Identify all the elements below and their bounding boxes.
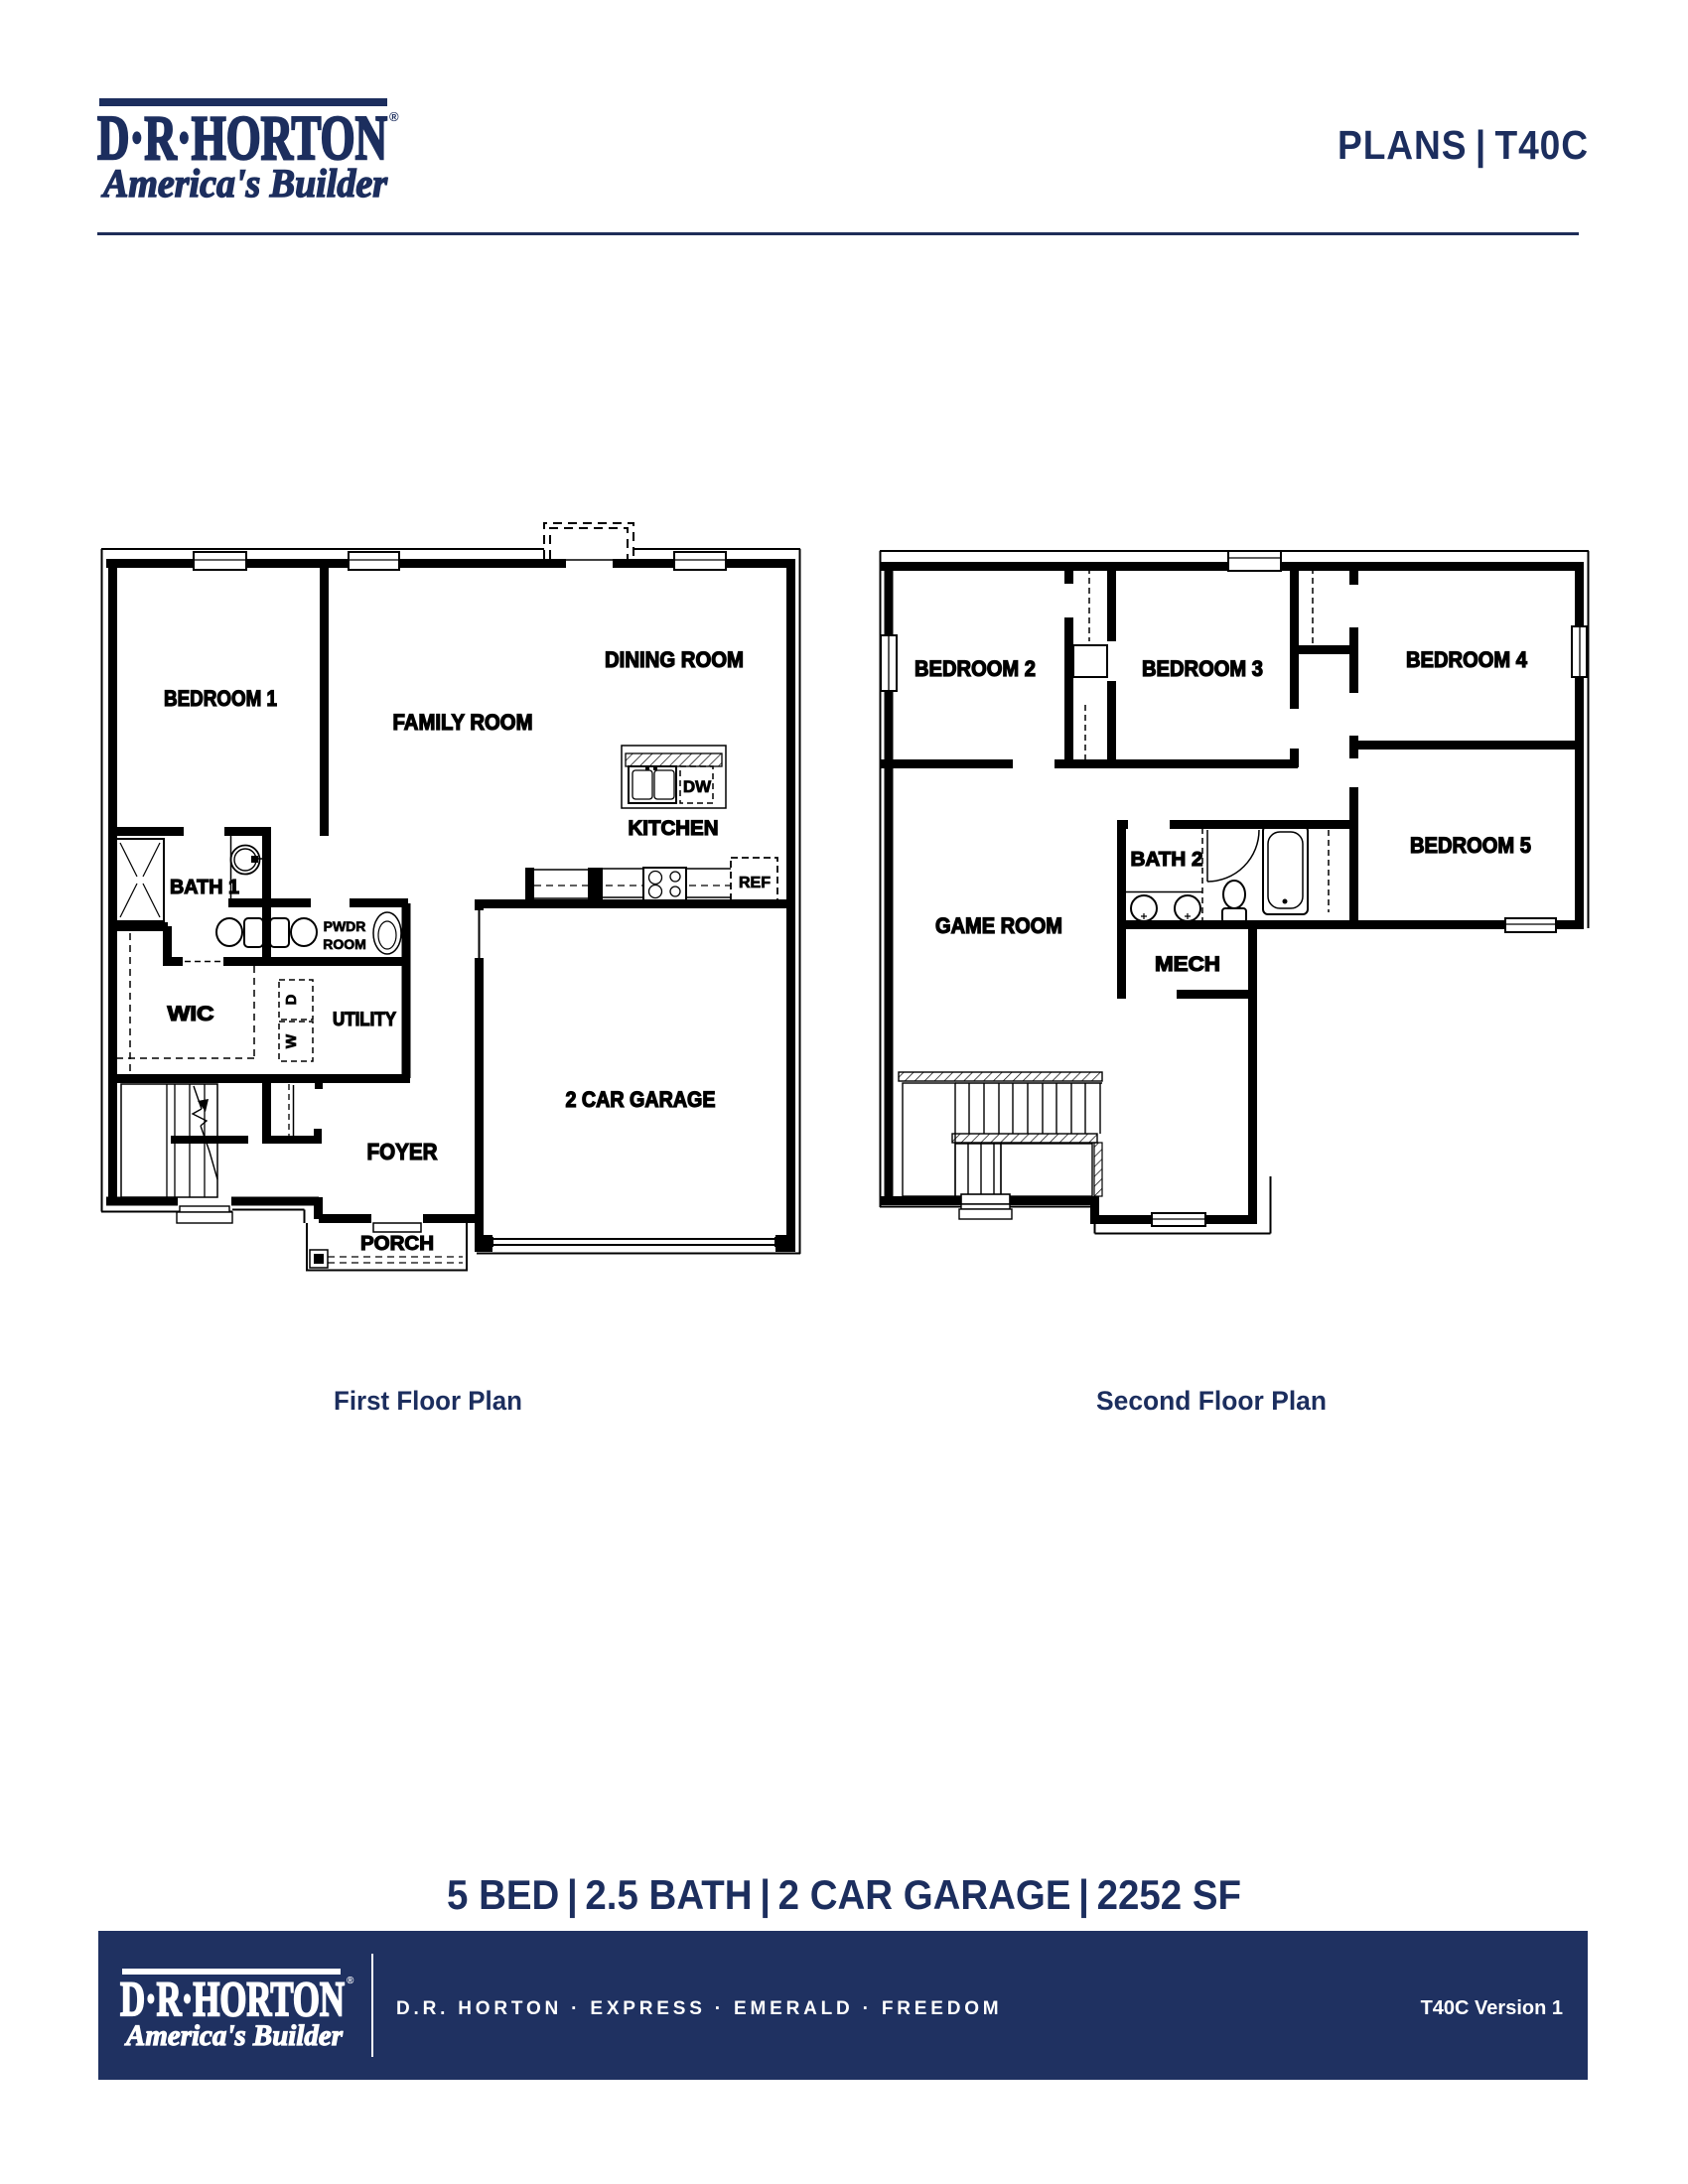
- svg-text:®: ®: [389, 109, 399, 124]
- svg-text:America's Builder: America's Builder: [124, 2019, 343, 2052]
- svg-text:Second Floor Plan: Second Floor Plan: [1096, 1386, 1327, 1416]
- svg-text:America's Builder: America's Builder: [100, 161, 387, 205]
- svg-text:BEDROOM 2: BEDROOM 2: [914, 656, 1036, 681]
- svg-text:BEDROOM 1: BEDROOM 1: [164, 686, 277, 711]
- svg-text:BEDROOM 5: BEDROOM 5: [1410, 833, 1531, 858]
- svg-text:FOYER: FOYER: [367, 1139, 438, 1164]
- svg-text:KITCHEN: KITCHEN: [629, 817, 719, 840]
- svg-text:D·R·HORTON: D·R·HORTON: [120, 1971, 345, 2026]
- svg-text:BATH 1: BATH 1: [170, 877, 239, 898]
- svg-text:MECH: MECH: [1155, 953, 1220, 976]
- svg-text:BATH 2: BATH 2: [1131, 849, 1203, 871]
- svg-text:®: ®: [347, 1976, 354, 1986]
- svg-text:FAMILY ROOM: FAMILY ROOM: [393, 710, 533, 735]
- svg-text:UTILITY: UTILITY: [333, 1010, 396, 1030]
- svg-text:PLANS | T40C: PLANS | T40C: [1337, 122, 1589, 168]
- svg-text:D.R. HORTON · EXPRESS · EMERAL: D.R. HORTON · EXPRESS · EMERALD · FREEDO…: [396, 1998, 1002, 2019]
- svg-text:ROOM: ROOM: [323, 936, 366, 952]
- svg-text:5 BED | 2.5 BATH | 2 CAR GARAG: 5 BED | 2.5 BATH | 2 CAR GARAGE | 2252 S…: [447, 1871, 1241, 1919]
- svg-text:2 CAR GARAGE: 2 CAR GARAGE: [566, 1087, 716, 1112]
- svg-text:PORCH: PORCH: [360, 1233, 434, 1255]
- svg-text:WIC: WIC: [168, 1003, 214, 1025]
- svg-text:DW: DW: [683, 777, 712, 796]
- svg-text:BEDROOM 4: BEDROOM 4: [1406, 647, 1528, 672]
- svg-text:D: D: [283, 994, 300, 1005]
- svg-text:BEDROOM 3: BEDROOM 3: [1142, 656, 1263, 681]
- svg-text:REF: REF: [739, 875, 771, 891]
- svg-text:PWDR: PWDR: [324, 918, 366, 934]
- svg-text:First Floor Plan: First Floor Plan: [334, 1386, 522, 1416]
- svg-text:W: W: [283, 1033, 300, 1048]
- svg-text:GAME ROOM: GAME ROOM: [935, 913, 1062, 938]
- svg-text:T40C Version 1: T40C Version 1: [1421, 1997, 1563, 2019]
- svg-text:DINING ROOM: DINING ROOM: [605, 647, 744, 672]
